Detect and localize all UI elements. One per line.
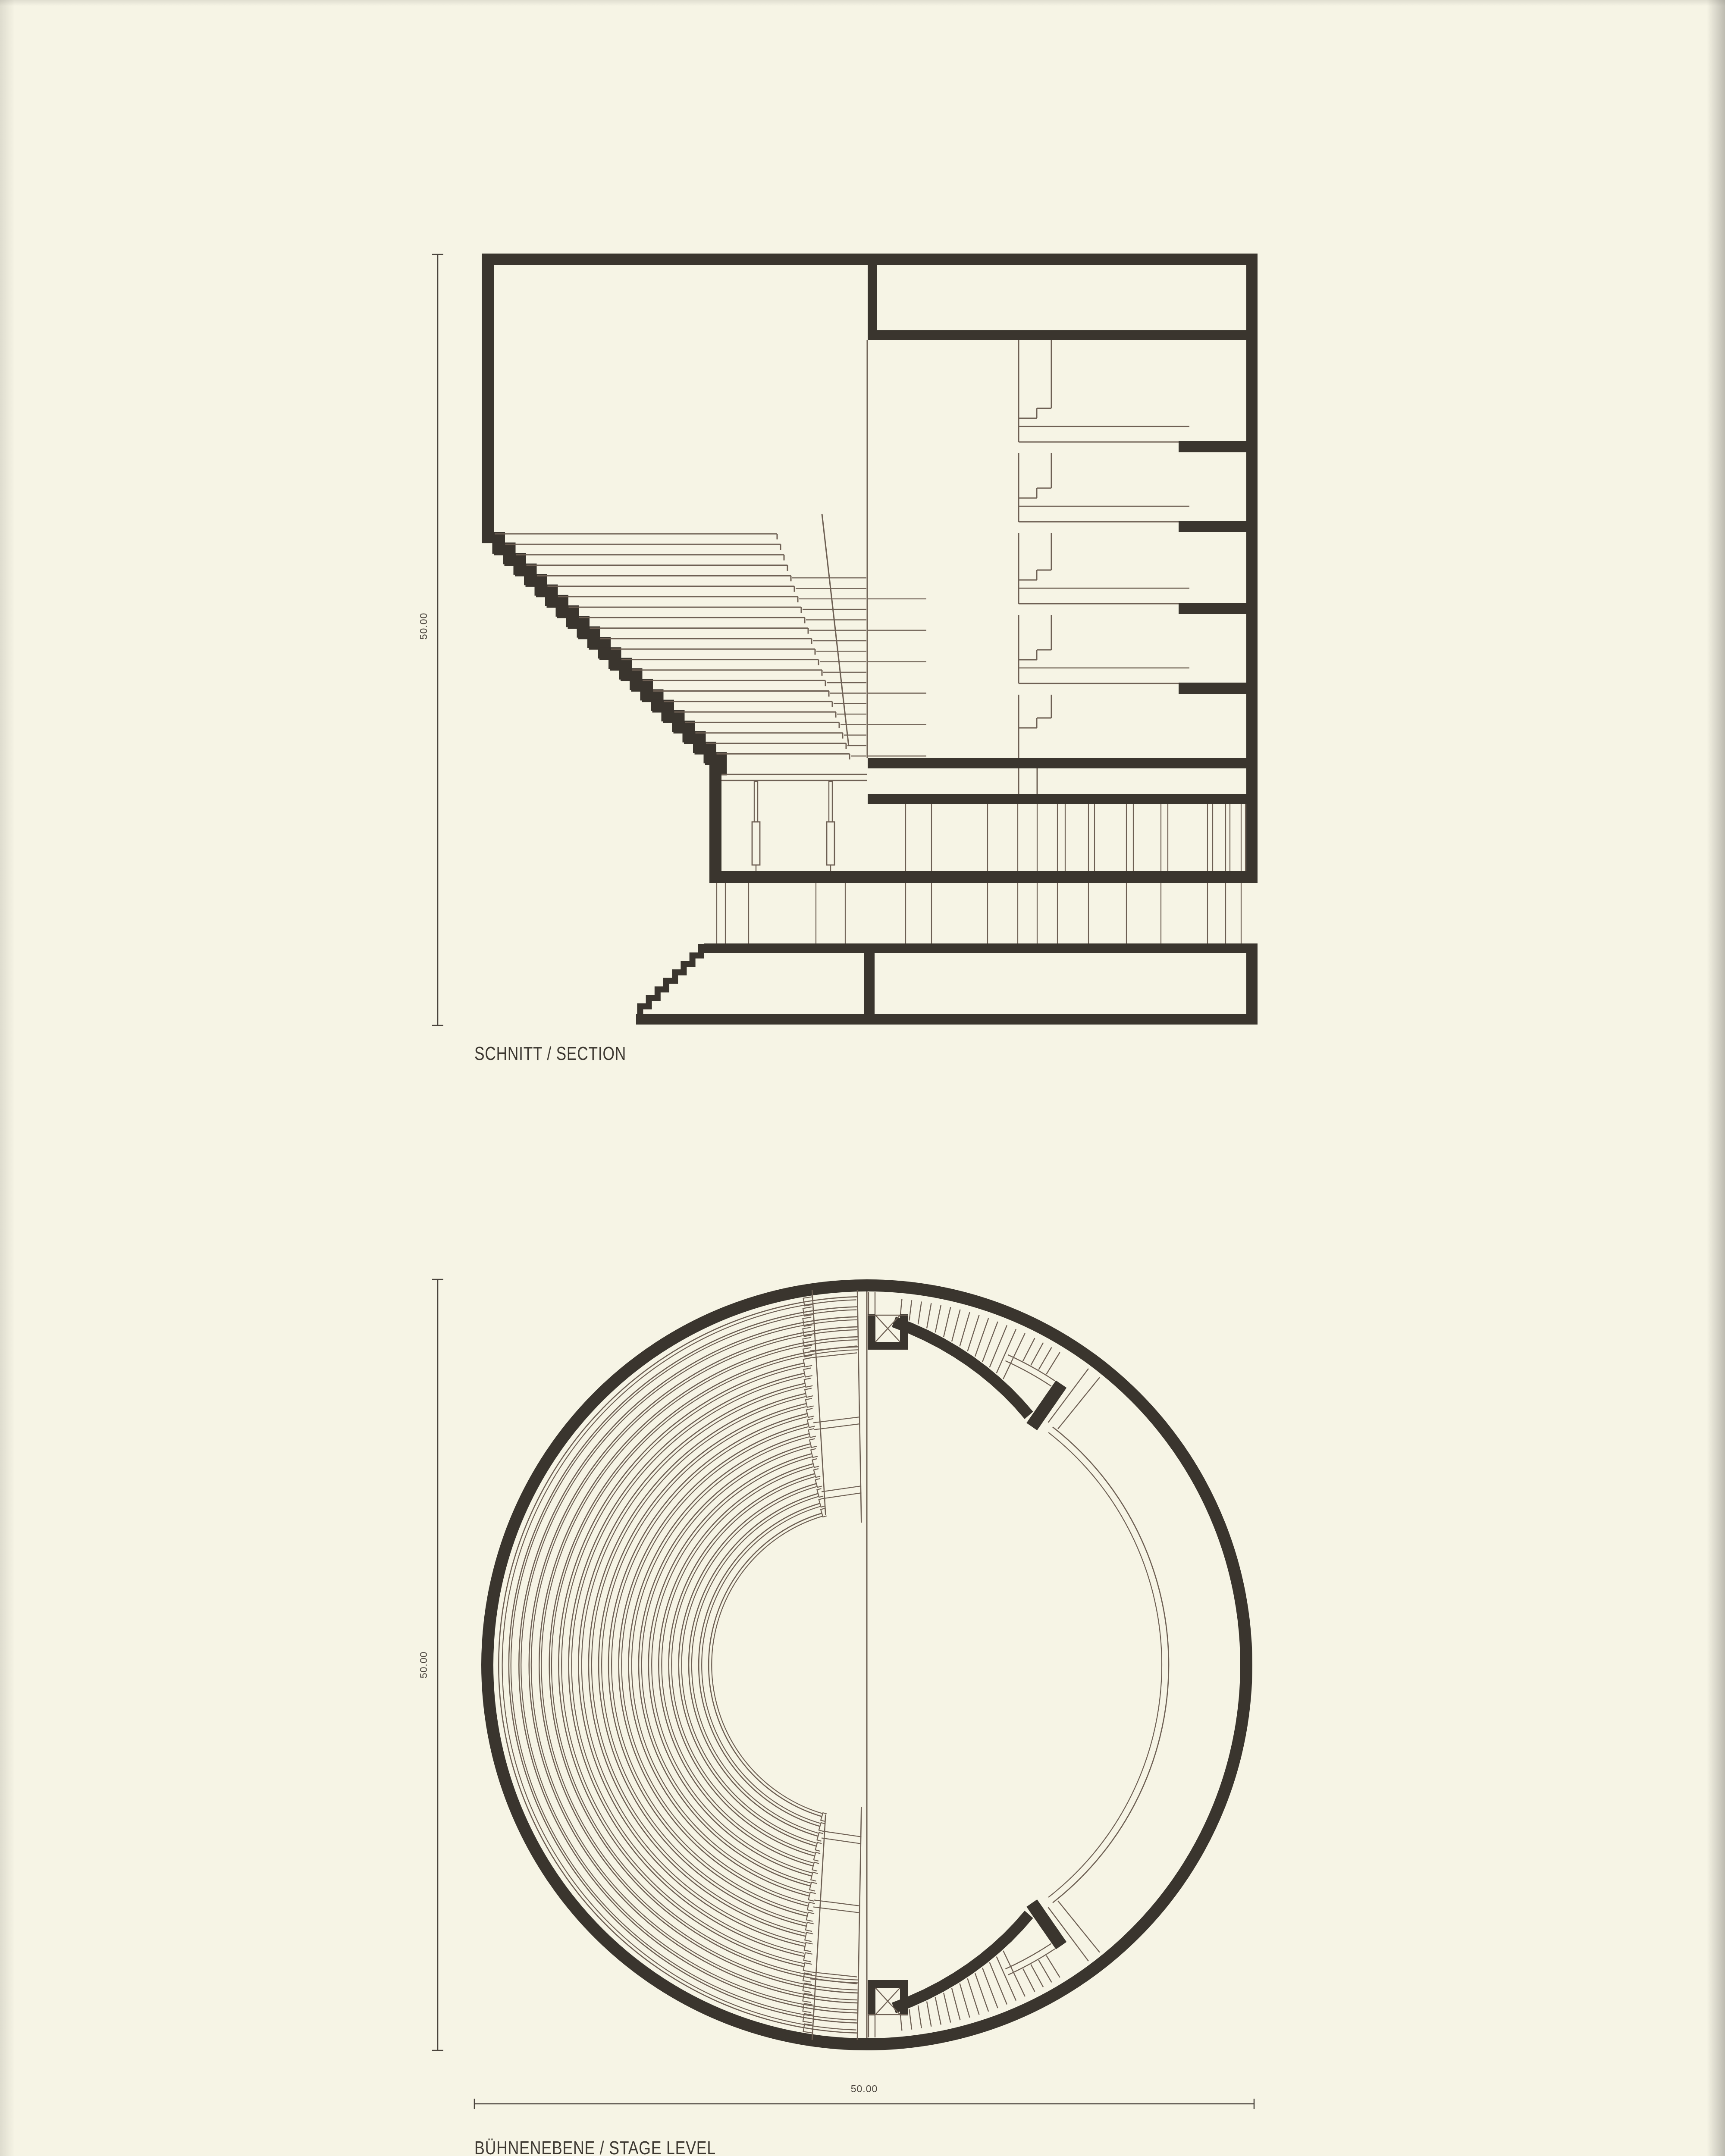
left-edge-shadow [0,0,15,2156]
architectural-poster: SCHNITT / SECTION BÜHNENEBENE / STAGE LE… [0,0,1725,2156]
section-drawing [482,254,1258,1025]
dimension-lines [432,254,1254,2109]
section-vertical-dimension-value: 50.00 [418,613,429,640]
stage-level-plan-drawing [487,1285,1246,2044]
plan-label: BÜHNENEBENE / STAGE LEVEL [474,2137,716,2156]
scan-edge-shading [0,0,1725,2156]
plan-horizontal-dimension-value: 50.00 [851,2083,878,2094]
annotations: SCHNITT / SECTION BÜHNENEBENE / STAGE LE… [418,613,971,2156]
section-label: SCHNITT / SECTION [474,1043,626,1064]
right-edge-shadow [1707,0,1725,2156]
plan-vertical-dimension-value: 50.00 [418,1651,429,1679]
theater-drawing-sheet: SCHNITT / SECTION BÜHNENEBENE / STAGE LE… [0,0,1725,2156]
top-edge-shadow [0,0,1725,6]
